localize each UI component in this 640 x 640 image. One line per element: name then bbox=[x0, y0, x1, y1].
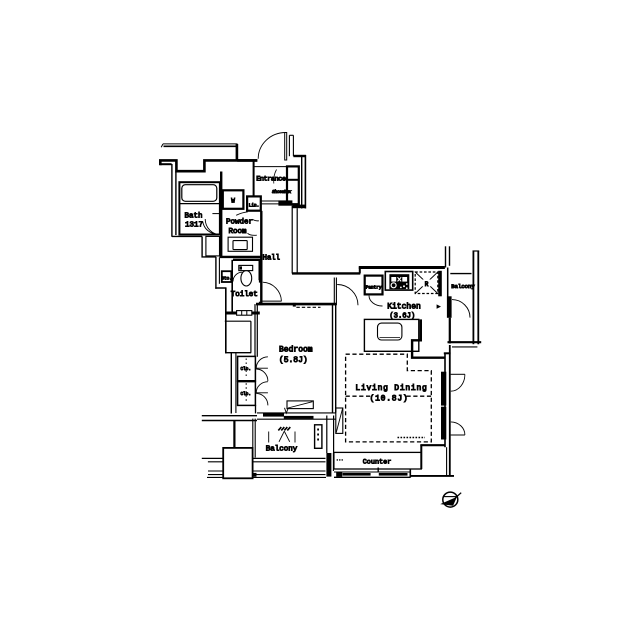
svg-text:Hall: Hall bbox=[263, 254, 280, 262]
svg-text:(10.8J): (10.8J) bbox=[370, 394, 409, 403]
svg-text:Bedroom: Bedroom bbox=[279, 346, 313, 355]
svg-text:(5.8J): (5.8J) bbox=[279, 356, 308, 365]
svg-text:Entrance: Entrance bbox=[256, 176, 286, 184]
svg-text:R: R bbox=[425, 281, 429, 288]
svg-text:Toilet: Toilet bbox=[231, 291, 258, 299]
svg-text:Kitchen: Kitchen bbox=[387, 303, 421, 312]
svg-text:Counter: Counter bbox=[363, 458, 392, 466]
svg-text:Living Dining: Living Dining bbox=[355, 384, 427, 393]
svg-text:1317: 1317 bbox=[185, 222, 203, 230]
svg-text:ShoesBox: ShoesBox bbox=[272, 189, 291, 195]
svg-text:Pantry: Pantry bbox=[366, 285, 382, 290]
svg-text:Room: Room bbox=[228, 228, 247, 236]
svg-text:Sto.: Sto. bbox=[221, 276, 232, 281]
svg-text:Balcony: Balcony bbox=[451, 283, 475, 290]
svg-text:Bath: Bath bbox=[184, 212, 202, 220]
svg-text:W: W bbox=[231, 197, 235, 204]
svg-text:Balcony: Balcony bbox=[266, 445, 298, 453]
svg-text:Powder: Powder bbox=[226, 218, 253, 226]
svg-text:Lin.: Lin. bbox=[249, 204, 260, 209]
